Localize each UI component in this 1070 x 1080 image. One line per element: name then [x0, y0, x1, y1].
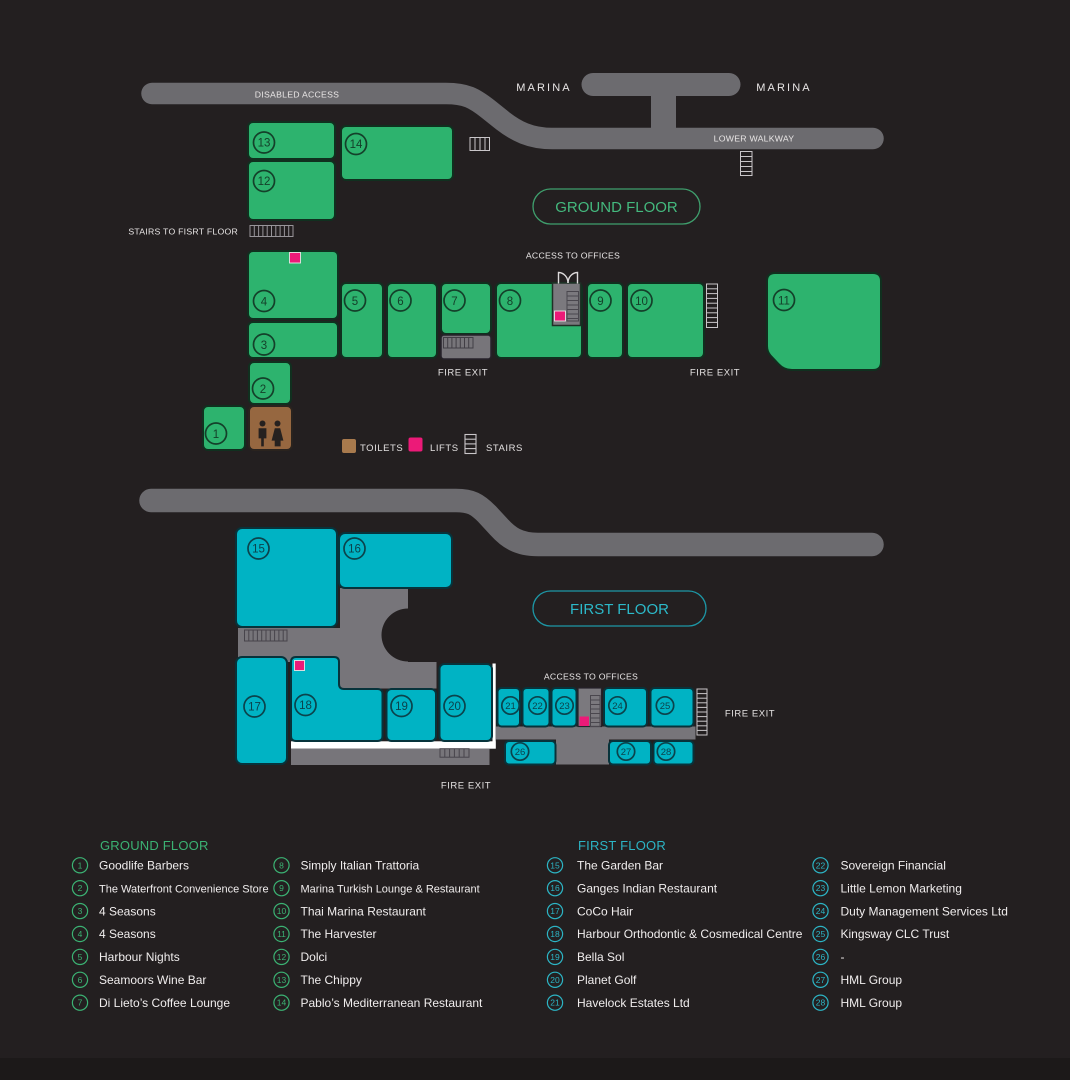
svg-text:4: 4	[78, 929, 83, 939]
svg-text:24: 24	[816, 906, 826, 916]
svg-text:-: -	[841, 950, 845, 964]
svg-text:STAIRS: STAIRS	[486, 443, 523, 454]
svg-text:20: 20	[448, 701, 461, 713]
svg-text:Simply Italian Trattoria: Simply Italian Trattoria	[301, 859, 420, 873]
svg-text:18: 18	[550, 929, 560, 939]
svg-text:FIRE EXIT: FIRE EXIT	[438, 368, 488, 379]
svg-text:GROUND FLOOR: GROUND FLOOR	[555, 199, 678, 216]
svg-text:24: 24	[612, 701, 623, 712]
svg-text:28: 28	[816, 998, 826, 1008]
svg-text:Sovereign Financial: Sovereign Financial	[841, 859, 946, 873]
svg-text:FIRE EXIT: FIRE EXIT	[725, 709, 775, 720]
svg-text:7: 7	[451, 296, 457, 308]
svg-text:Marina Turkish Lounge & Restau: Marina Turkish Lounge & Restaurant	[301, 883, 480, 895]
svg-text:ACCESS TO OFFICES: ACCESS TO OFFICES	[544, 672, 638, 682]
svg-text:10: 10	[277, 906, 287, 916]
svg-text:Seamoors Wine Bar: Seamoors Wine Bar	[99, 973, 206, 987]
svg-text:27: 27	[816, 975, 826, 985]
svg-text:23: 23	[559, 701, 570, 712]
svg-text:GROUND FLOOR: GROUND FLOOR	[100, 838, 209, 853]
svg-text:2: 2	[78, 883, 83, 893]
svg-text:Kingsway CLC Trust: Kingsway CLC Trust	[841, 927, 950, 941]
svg-text:Thai Marina Restaurant: Thai Marina Restaurant	[301, 904, 427, 918]
svg-text:16: 16	[348, 544, 361, 556]
svg-text:20: 20	[550, 975, 560, 985]
svg-text:Di Lieto’s Coffee Lounge: Di Lieto’s Coffee Lounge	[99, 996, 230, 1010]
svg-text:CoCo Hair: CoCo Hair	[577, 904, 633, 918]
svg-text:5: 5	[352, 296, 358, 308]
svg-text:16: 16	[550, 883, 560, 893]
svg-text:Pablo’s Mediterranean Restaura: Pablo’s Mediterranean Restaurant	[301, 996, 484, 1010]
svg-text:9: 9	[597, 296, 603, 308]
svg-text:Bella Sol: Bella Sol	[577, 950, 624, 964]
svg-text:HML Group: HML Group	[841, 996, 903, 1010]
svg-text:13: 13	[258, 138, 271, 150]
svg-text:14: 14	[350, 139, 363, 151]
svg-text:3: 3	[261, 340, 267, 352]
svg-text:MARINA: MARINA	[756, 82, 811, 94]
svg-text:ACCESS TO OFFICES: ACCESS TO OFFICES	[526, 251, 620, 261]
svg-text:Goodlife Barbers: Goodlife Barbers	[99, 859, 189, 873]
svg-text:2: 2	[260, 384, 266, 396]
svg-text:The Waterfront Convenience Sto: The Waterfront Convenience Store	[99, 883, 269, 895]
svg-text:Harbour Orthodontic & Cosmedic: Harbour Orthodontic & Cosmedical Centre	[577, 927, 803, 941]
svg-text:8: 8	[507, 296, 513, 308]
svg-text:28: 28	[661, 747, 672, 758]
svg-text:21: 21	[505, 701, 516, 712]
svg-text:19: 19	[395, 701, 408, 713]
svg-text:STAIRS TO FISRT FLOOR: STAIRS TO FISRT FLOOR	[128, 227, 238, 237]
svg-text:14: 14	[277, 998, 287, 1008]
svg-text:Ganges Indian Restaurant: Ganges Indian Restaurant	[577, 881, 718, 895]
svg-text:17: 17	[248, 702, 261, 714]
svg-text:8: 8	[279, 860, 284, 870]
svg-text:13: 13	[277, 975, 287, 985]
svg-text:15: 15	[550, 860, 560, 870]
svg-text:FIRE EXIT: FIRE EXIT	[690, 368, 740, 379]
svg-text:12: 12	[277, 952, 287, 962]
svg-text:25: 25	[660, 701, 671, 712]
svg-text:3: 3	[78, 906, 83, 916]
svg-text:FIRE EXIT: FIRE EXIT	[441, 781, 491, 792]
svg-text:MARINA: MARINA	[516, 82, 571, 94]
svg-text:FIRST FLOOR: FIRST FLOOR	[570, 601, 669, 618]
svg-text:1: 1	[213, 429, 219, 441]
svg-text:27: 27	[621, 747, 632, 758]
svg-text:TOILETS: TOILETS	[360, 443, 403, 454]
svg-text:17: 17	[550, 906, 560, 916]
svg-text:6: 6	[78, 975, 83, 985]
svg-text:26: 26	[816, 952, 826, 962]
svg-text:12: 12	[258, 176, 271, 188]
svg-text:11: 11	[277, 929, 286, 939]
svg-text:DISABLED ACCESS: DISABLED ACCESS	[255, 90, 339, 100]
svg-text:6: 6	[397, 296, 403, 308]
svg-text:18: 18	[299, 700, 312, 712]
svg-text:21: 21	[550, 998, 560, 1008]
svg-text:FIRST FLOOR: FIRST FLOOR	[578, 838, 666, 853]
svg-text:4 Seasons: 4 Seasons	[99, 904, 156, 918]
svg-text:7: 7	[78, 998, 83, 1008]
svg-text:Dolci: Dolci	[301, 950, 328, 964]
svg-text:26: 26	[515, 747, 526, 758]
svg-text:5: 5	[78, 952, 83, 962]
svg-text:22: 22	[816, 860, 826, 870]
svg-text:25: 25	[816, 929, 826, 939]
svg-text:Duty Management Services Ltd: Duty Management Services Ltd	[841, 904, 1008, 918]
svg-text:9: 9	[279, 883, 284, 893]
svg-text:11: 11	[778, 296, 790, 308]
svg-text:LOWER WALKWAY: LOWER WALKWAY	[714, 134, 795, 144]
svg-text:1: 1	[78, 860, 83, 870]
svg-text:Havelock Estates Ltd: Havelock Estates Ltd	[577, 996, 690, 1010]
svg-text:10: 10	[635, 296, 648, 308]
svg-text:The Garden Bar: The Garden Bar	[577, 859, 663, 873]
svg-text:The Chippy: The Chippy	[301, 973, 362, 987]
svg-text:22: 22	[532, 701, 543, 712]
svg-text:15: 15	[252, 544, 265, 556]
svg-text:23: 23	[816, 883, 826, 893]
svg-text:4 Seasons: 4 Seasons	[99, 927, 156, 941]
svg-text:4: 4	[261, 297, 268, 309]
svg-text:19: 19	[550, 952, 560, 962]
svg-text:LIFTS: LIFTS	[430, 443, 459, 454]
svg-text:Planet Golf: Planet Golf	[577, 973, 637, 987]
svg-text:Harbour Nights: Harbour Nights	[99, 950, 180, 964]
svg-text:The Harvester: The Harvester	[301, 927, 377, 941]
svg-text:Little Lemon Marketing: Little Lemon Marketing	[841, 881, 962, 895]
svg-text:HML Group: HML Group	[841, 973, 903, 987]
